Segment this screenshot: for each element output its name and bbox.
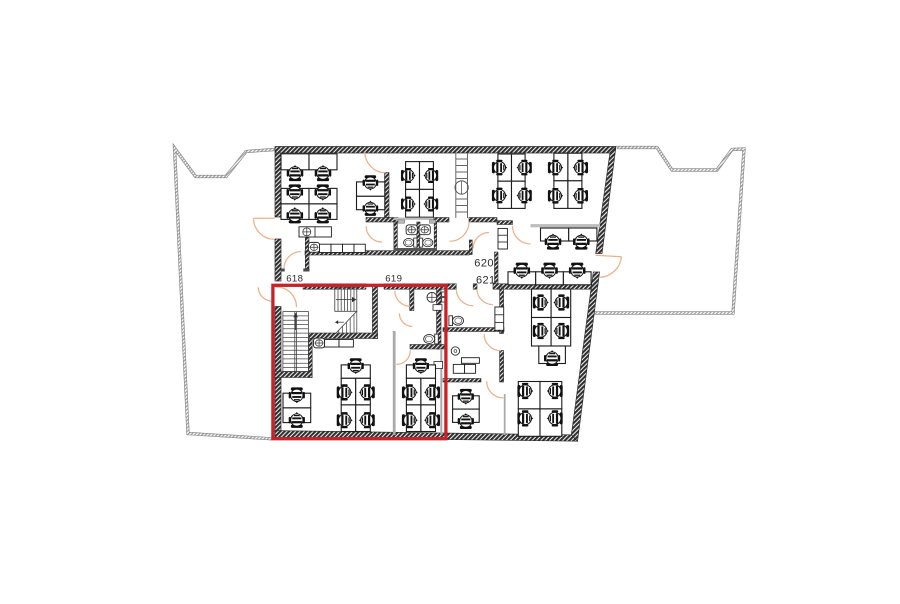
svg-text:620: 620	[474, 257, 494, 269]
svg-text:619: 619	[385, 273, 402, 284]
svg-text:621: 621	[476, 275, 496, 287]
svg-text:618: 618	[286, 273, 303, 284]
